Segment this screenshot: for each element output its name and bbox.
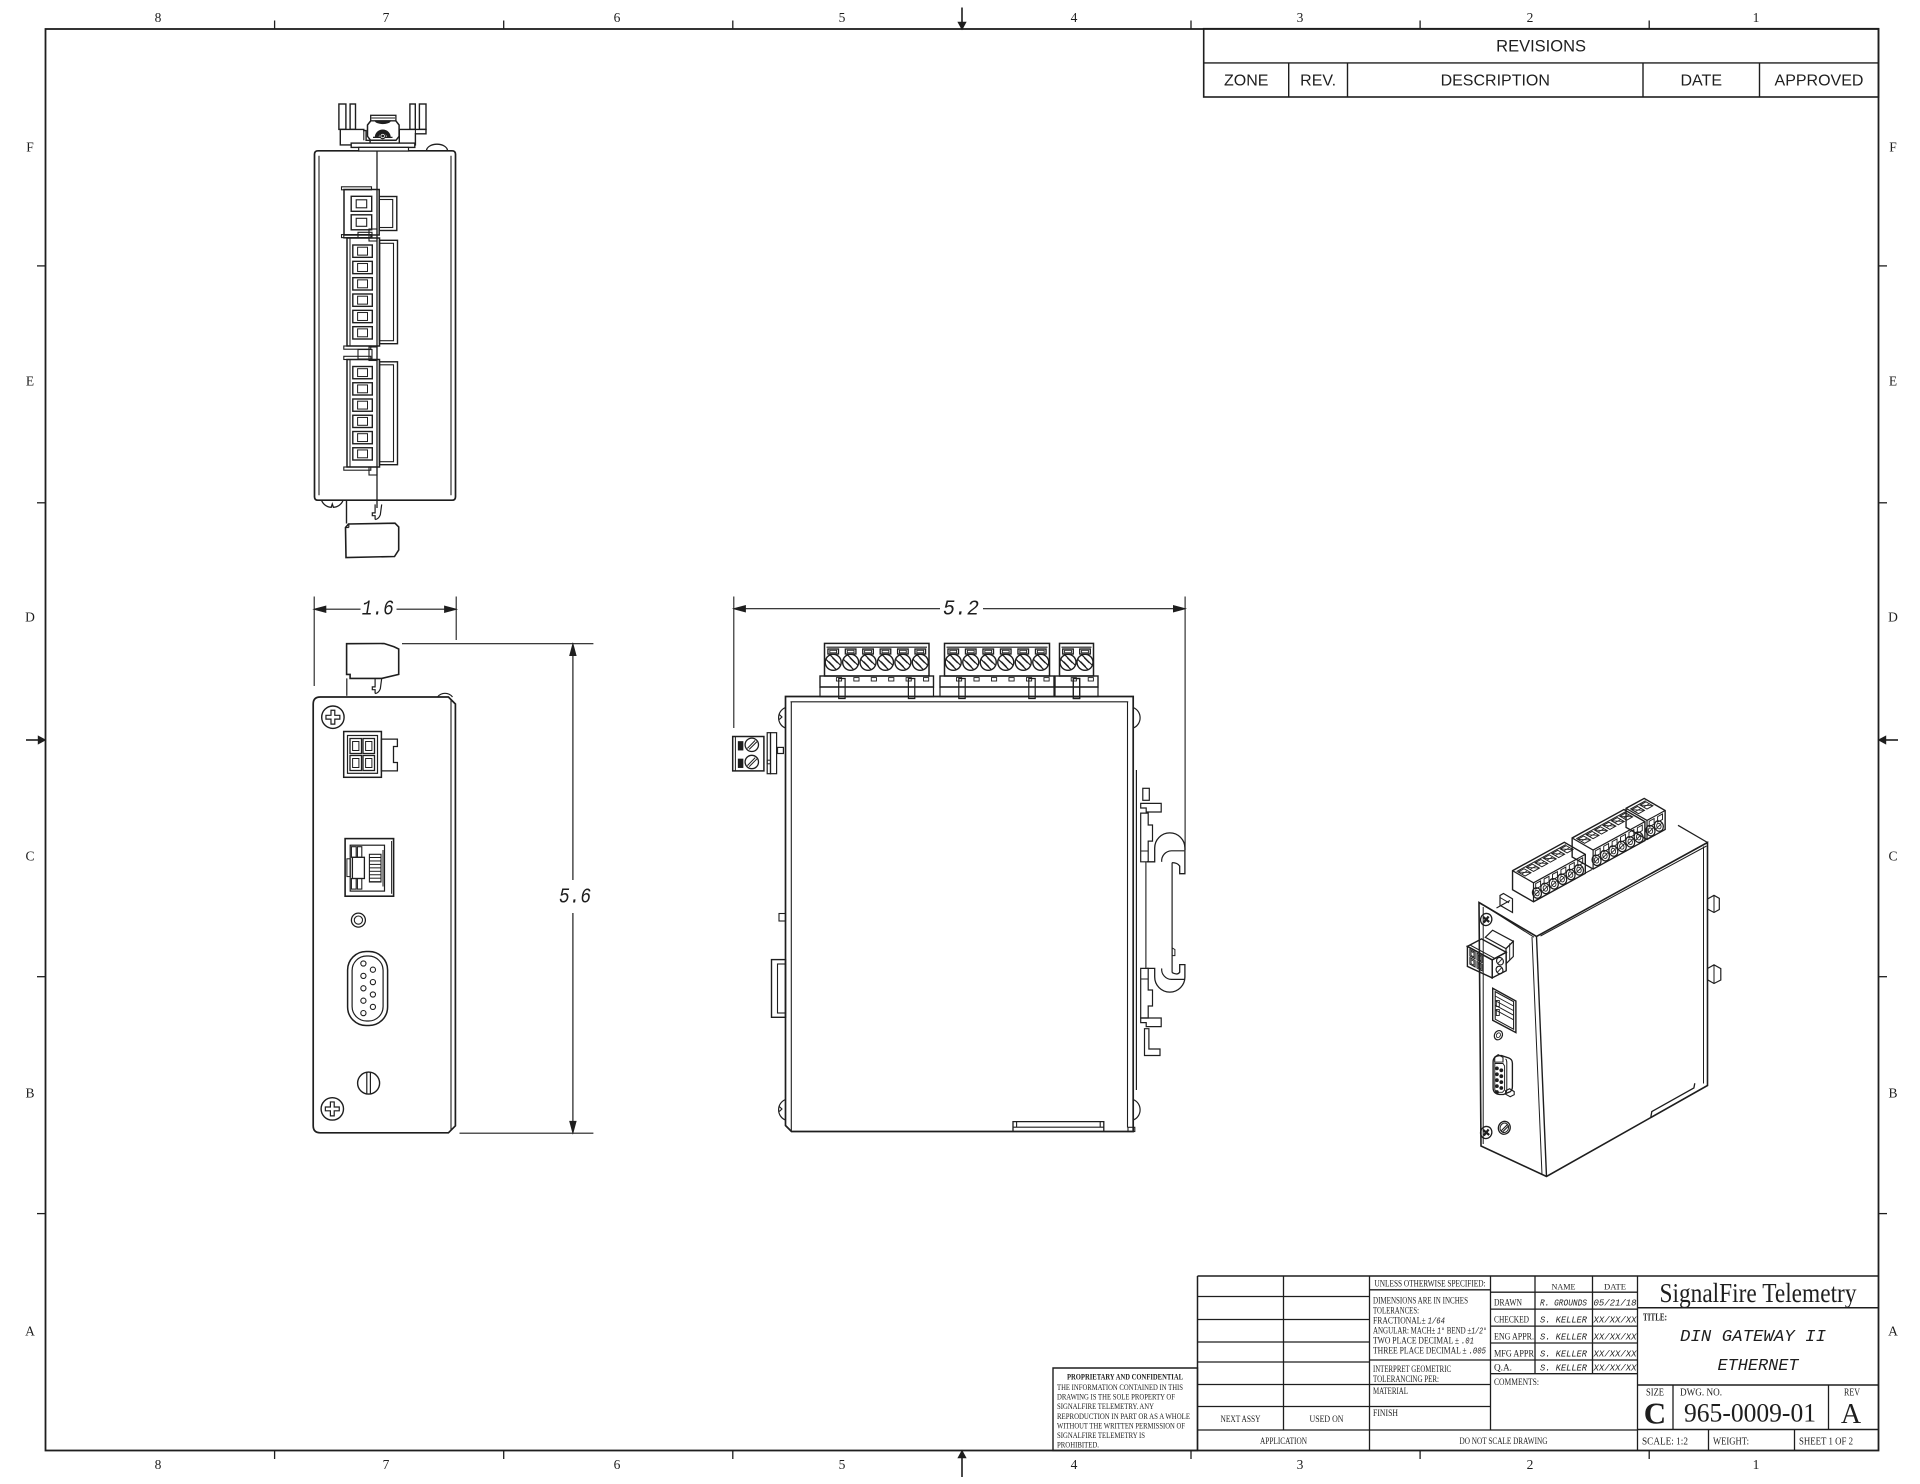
svg-text:XX/XX/XX: XX/XX/XX bbox=[1593, 1349, 1637, 1360]
svg-text:NEXT ASSY: NEXT ASSY bbox=[1221, 1415, 1261, 1425]
svg-text:FRACTIONAL± 1/64: FRACTIONAL± 1/64 bbox=[1373, 1317, 1445, 1327]
svg-text:PROPRIETARY AND CONFIDENTIAL: PROPRIETARY AND CONFIDENTIAL bbox=[1067, 1373, 1183, 1382]
svg-text:Q.A.: Q.A. bbox=[1494, 1363, 1512, 1373]
svg-text:XX/XX/XX: XX/XX/XX bbox=[1593, 1315, 1637, 1326]
svg-text:R. GROUNDS: R. GROUNDS bbox=[1540, 1298, 1587, 1309]
svg-text:B: B bbox=[25, 1086, 34, 1101]
svg-text:XX/XX/XX: XX/XX/XX bbox=[1593, 1332, 1637, 1343]
svg-text:D: D bbox=[1888, 610, 1898, 625]
svg-text:SignalFire Telemetry: SignalFire Telemetry bbox=[1660, 1277, 1857, 1308]
svg-text:SIGNALFIRE TELEMETRY IS: SIGNALFIRE TELEMETRY IS bbox=[1057, 1431, 1145, 1440]
svg-text:INTERPRET GEOMETRIC: INTERPRET GEOMETRIC bbox=[1373, 1365, 1451, 1375]
svg-text:F: F bbox=[1889, 140, 1897, 155]
svg-text:SCALE: 1:2: SCALE: 1:2 bbox=[1642, 1437, 1688, 1448]
svg-text:DWG. NO.: DWG. NO. bbox=[1680, 1388, 1722, 1399]
svg-text:MATERIAL: MATERIAL bbox=[1373, 1387, 1408, 1397]
svg-text:SHEET 1 OF 2: SHEET 1 OF 2 bbox=[1799, 1437, 1853, 1448]
svg-text:NAME: NAME bbox=[1552, 1282, 1576, 1292]
svg-text:2: 2 bbox=[1527, 1457, 1534, 1472]
svg-text:COMMENTS:: COMMENTS: bbox=[1494, 1377, 1539, 1388]
svg-text:ZONE: ZONE bbox=[1224, 73, 1268, 90]
svg-text:DO NOT SCALE DRAWING: DO NOT SCALE DRAWING bbox=[1460, 1437, 1548, 1447]
svg-text:DATE: DATE bbox=[1604, 1282, 1626, 1292]
svg-text:965-0009-01: 965-0009-01 bbox=[1684, 1399, 1816, 1428]
svg-text:WITHOUT THE WRITTEN PERMISSION: WITHOUT THE WRITTEN PERMISSION OF bbox=[1057, 1421, 1185, 1430]
svg-text:TOLERANCING PER:: TOLERANCING PER: bbox=[1373, 1375, 1439, 1385]
svg-text:5: 5 bbox=[839, 1457, 846, 1472]
svg-text:WEIGHT:: WEIGHT: bbox=[1713, 1437, 1749, 1448]
svg-text:REVISIONS: REVISIONS bbox=[1496, 38, 1586, 56]
svg-text:A: A bbox=[1888, 1324, 1898, 1339]
svg-text:TOLERANCES:: TOLERANCES: bbox=[1373, 1307, 1419, 1317]
svg-text:XX/XX/XX: XX/XX/XX bbox=[1593, 1363, 1637, 1374]
svg-text:6: 6 bbox=[614, 1457, 621, 1472]
svg-text:05/21/18: 05/21/18 bbox=[1594, 1298, 1637, 1309]
svg-text:DRAWN: DRAWN bbox=[1494, 1298, 1522, 1308]
svg-text:5.6: 5.6 bbox=[559, 887, 591, 910]
svg-text:C: C bbox=[25, 849, 34, 864]
svg-text:PROHIBITED.: PROHIBITED. bbox=[1057, 1441, 1099, 1450]
svg-text:3: 3 bbox=[1297, 10, 1304, 25]
svg-text:DIMENSIONS ARE IN INCHES: DIMENSIONS ARE IN INCHES bbox=[1373, 1297, 1468, 1307]
svg-text:7: 7 bbox=[383, 10, 390, 25]
svg-text:REV.: REV. bbox=[1300, 73, 1336, 90]
svg-text:ETHERNET: ETHERNET bbox=[1718, 1356, 1800, 1375]
svg-text:3: 3 bbox=[1297, 1457, 1304, 1472]
svg-text:B: B bbox=[1888, 1086, 1897, 1101]
svg-text:6: 6 bbox=[614, 10, 621, 25]
svg-text:7: 7 bbox=[383, 1457, 390, 1472]
svg-text:C: C bbox=[1888, 849, 1897, 864]
svg-text:8: 8 bbox=[155, 1457, 162, 1472]
svg-text:1: 1 bbox=[1753, 10, 1760, 25]
svg-text:DRAWING IS THE SOLE PROPERTY O: DRAWING IS THE SOLE PROPERTY OF bbox=[1057, 1393, 1175, 1402]
svg-text:USED ON: USED ON bbox=[1310, 1415, 1344, 1425]
svg-text:D: D bbox=[25, 610, 35, 625]
svg-text:APPROVED: APPROVED bbox=[1775, 73, 1864, 90]
svg-text:1: 1 bbox=[1753, 1457, 1760, 1472]
svg-text:S. KELLER: S. KELLER bbox=[1540, 1332, 1587, 1343]
svg-text:S. KELLER: S. KELLER bbox=[1540, 1349, 1587, 1360]
svg-text:8: 8 bbox=[155, 10, 162, 25]
svg-text:UNLESS OTHERWISE SPECIFIED:: UNLESS OTHERWISE SPECIFIED: bbox=[1375, 1280, 1486, 1290]
svg-text:THE INFORMATION CONTAINED IN T: THE INFORMATION CONTAINED IN THIS bbox=[1057, 1383, 1183, 1392]
svg-text:A: A bbox=[25, 1324, 35, 1339]
svg-text:2: 2 bbox=[1527, 10, 1534, 25]
svg-text:DIN GATEWAY II: DIN GATEWAY II bbox=[1680, 1327, 1826, 1346]
svg-text:REPRODUCTION IN PART OR AS A W: REPRODUCTION IN PART OR AS A WHOLE bbox=[1057, 1412, 1190, 1421]
svg-text:E: E bbox=[1889, 374, 1897, 389]
svg-text:TWO PLACE DECIMAL ± .01: TWO PLACE DECIMAL ± .01 bbox=[1373, 1337, 1474, 1347]
svg-text:4: 4 bbox=[1071, 10, 1078, 25]
svg-text:S. KELLER: S. KELLER bbox=[1540, 1315, 1587, 1326]
svg-text:ANGULAR: MACH± 1° BEND ±1/2°: ANGULAR: MACH± 1° BEND ±1/2° bbox=[1373, 1327, 1487, 1337]
svg-text:C: C bbox=[1644, 1396, 1666, 1431]
svg-text:A: A bbox=[1841, 1399, 1862, 1430]
svg-text:5: 5 bbox=[839, 10, 846, 25]
svg-text:5.2: 5.2 bbox=[943, 599, 979, 622]
svg-text:F: F bbox=[26, 140, 34, 155]
svg-text:S. KELLER: S. KELLER bbox=[1540, 1363, 1587, 1374]
svg-text:APPLICATION: APPLICATION bbox=[1260, 1437, 1307, 1447]
svg-text:4: 4 bbox=[1071, 1457, 1078, 1472]
svg-text:CHECKED: CHECKED bbox=[1494, 1315, 1529, 1325]
svg-text:TITLE:: TITLE: bbox=[1643, 1312, 1667, 1324]
svg-text:MFG APPR.: MFG APPR. bbox=[1494, 1349, 1536, 1359]
svg-text:DATE: DATE bbox=[1681, 73, 1722, 90]
svg-text:ENG APPR.: ENG APPR. bbox=[1494, 1332, 1534, 1342]
svg-text:REV: REV bbox=[1844, 1388, 1861, 1399]
svg-text:THREE PLACE DECIMAL ± .005: THREE PLACE DECIMAL ± .005 bbox=[1373, 1347, 1487, 1357]
svg-text:FINISH: FINISH bbox=[1373, 1409, 1398, 1419]
svg-text:DESCRIPTION: DESCRIPTION bbox=[1441, 73, 1550, 90]
svg-text:E: E bbox=[26, 374, 34, 389]
svg-text:SIGNALFIRE TELEMETRY. ANY: SIGNALFIRE TELEMETRY. ANY bbox=[1057, 1402, 1154, 1411]
svg-text:1.6: 1.6 bbox=[362, 599, 394, 622]
